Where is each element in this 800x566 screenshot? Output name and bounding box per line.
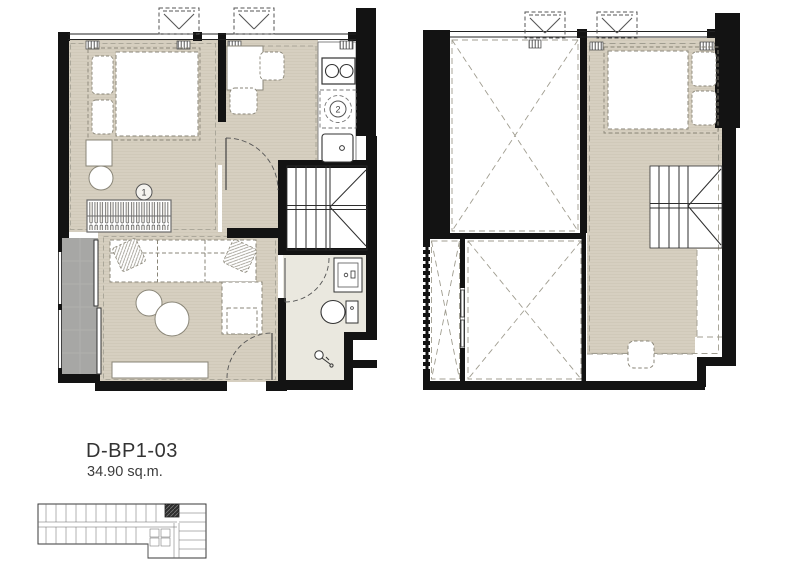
- floor-plan-page: 1 2: [0, 0, 800, 566]
- upper-chair: [628, 341, 654, 368]
- unit-code-label: D-BP1-03: [86, 440, 178, 463]
- tv-console: [112, 362, 208, 378]
- left-wall-ticks: [423, 246, 430, 370]
- key-plan: [38, 504, 206, 558]
- desk: [227, 46, 263, 90]
- unit-area-label: 34.90 sq.m.: [87, 464, 163, 480]
- key-plan-highlight-unit: [165, 504, 179, 517]
- lower-floor-plan: 1 2: [58, 8, 377, 391]
- balcony-window: [59, 252, 61, 304]
- desk-chair: [230, 88, 257, 114]
- closet-dashed-area: [697, 249, 722, 337]
- floor-plan-drawing: 1 2: [0, 0, 800, 566]
- marker-1-label: 1: [141, 188, 146, 198]
- coffee-table: [155, 302, 189, 336]
- bedside-table: [86, 140, 112, 166]
- mattress: [608, 51, 688, 129]
- shower-area: [283, 332, 344, 382]
- pillow: [692, 91, 716, 125]
- bedroom-bed: [88, 48, 200, 140]
- balcony-window: [59, 310, 61, 368]
- window-band-lower: [68, 34, 356, 40]
- stairwell-lower: [287, 166, 367, 250]
- kitchen-sink: [322, 134, 353, 162]
- void-strip: [430, 239, 462, 381]
- pillow: [92, 56, 113, 94]
- stove-icon: [322, 58, 355, 84]
- upper-floor-plan: [423, 12, 740, 390]
- pillow: [692, 52, 716, 86]
- stairwell-upper: [650, 166, 722, 248]
- marker-1-badge: 1: [136, 184, 152, 200]
- ac-unit-icon: [159, 8, 274, 34]
- pillow: [92, 100, 113, 134]
- desk-chair: [260, 52, 284, 80]
- bedroom-stool: [89, 166, 113, 190]
- vanity-sink: [334, 258, 362, 292]
- wardrobe: [87, 200, 171, 232]
- toilet: [321, 301, 358, 324]
- marker-2-label: 2: [335, 105, 340, 115]
- mattress: [116, 52, 198, 136]
